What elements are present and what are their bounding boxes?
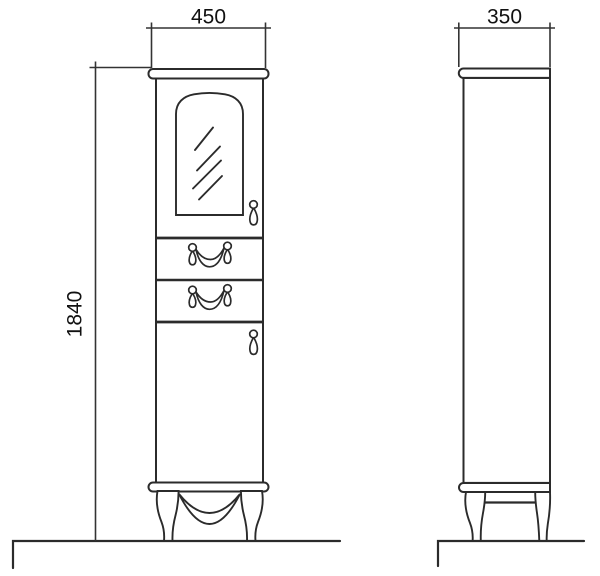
lower-door-drop-handle <box>250 330 258 354</box>
dimension-height-1840: 1840 <box>64 62 152 542</box>
side-front-leg <box>465 492 485 541</box>
height-dimension-label: 1840 <box>64 291 87 338</box>
front-view <box>13 69 340 568</box>
width-dimension-label: 450 <box>191 6 226 29</box>
mirror-panel <box>176 93 243 215</box>
technical-drawing-canvas: 450 350 1840 <box>0 0 600 576</box>
side-cabinet-body <box>464 78 551 483</box>
dimension-depth-350: 350 <box>454 6 555 68</box>
front-ground-line <box>13 541 340 568</box>
side-view <box>438 69 584 567</box>
cabinet-elevation-drawing: 450 350 1840 <box>0 0 600 576</box>
side-ground-line <box>438 541 584 566</box>
side-bottom-rail <box>459 483 550 492</box>
front-apron <box>179 494 240 524</box>
upper-door-drop-handle <box>250 201 258 225</box>
front-left-leg <box>157 491 179 541</box>
front-top-slab <box>149 69 269 79</box>
dimension-width-450: 450 <box>146 6 271 69</box>
depth-dimension-label: 350 <box>487 6 522 29</box>
front-right-leg <box>241 491 263 541</box>
side-top-slab <box>459 69 550 78</box>
side-back-leg <box>535 492 550 541</box>
